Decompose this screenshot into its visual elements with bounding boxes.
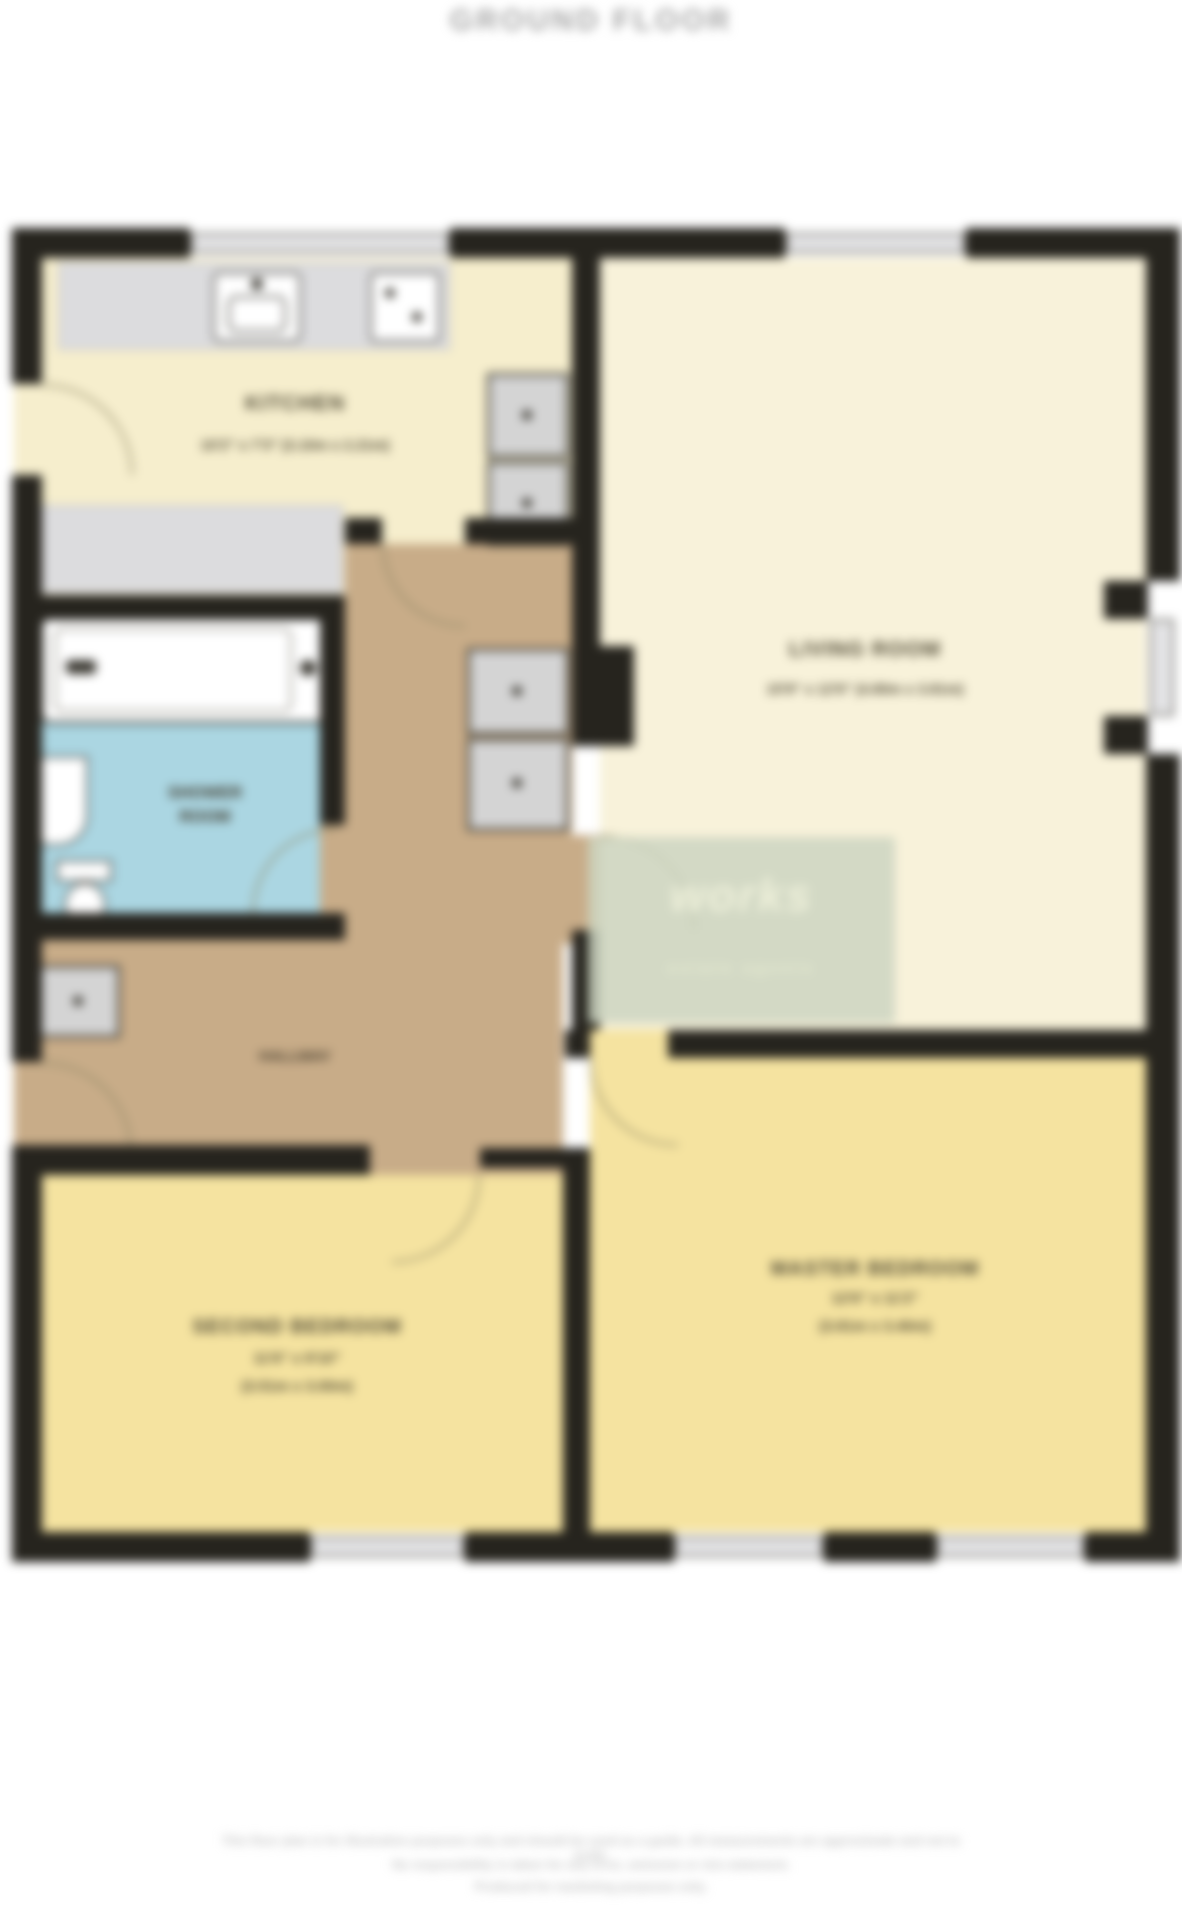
cupboard-knob-icon (512, 778, 522, 788)
hob-icon (370, 272, 440, 342)
watermark-box (588, 837, 895, 1023)
shower-room-label: ROOM (125, 808, 285, 827)
wall (465, 1532, 674, 1562)
toilet-cistern-icon (56, 860, 112, 882)
wall (345, 518, 382, 544)
wall (12, 1145, 370, 1175)
wall (1085, 1532, 1180, 1562)
wall (1146, 754, 1180, 1532)
wall (320, 595, 345, 825)
wall-stub (1104, 581, 1148, 619)
cupboard-knob-icon (512, 686, 522, 696)
window (1150, 619, 1174, 716)
wall (450, 228, 785, 258)
window (190, 233, 450, 253)
living-room-dims: 15'9" x 12'6" (4.80m x 3.81m) (685, 682, 1045, 698)
master-bedroom-label: MASTER BEDROOM (695, 1258, 1055, 1281)
wall-junction (572, 646, 634, 746)
wall (563, 1148, 590, 1532)
wall (12, 1152, 42, 1532)
living-room-label: LIVING ROOM (685, 638, 1045, 662)
wall-stub (1104, 716, 1148, 754)
watermark-logo-text: works (588, 868, 895, 922)
wall (668, 1030, 1146, 1058)
wall (12, 1532, 310, 1562)
kitchen-floor (14, 384, 42, 475)
window (310, 1537, 465, 1557)
window (674, 1537, 824, 1557)
kitchen-worktop (42, 505, 343, 593)
hob-burner-icon (412, 312, 422, 322)
unit-knob-icon (522, 498, 532, 508)
wall (572, 258, 600, 646)
hallway-floor (14, 1062, 42, 1152)
window (785, 233, 966, 253)
window (936, 1537, 1085, 1557)
second-bedroom-label: SECOND BEDROOM (117, 1316, 477, 1339)
shower-room-label: SHOWER (125, 784, 285, 803)
wall (565, 1030, 590, 1058)
bath-tap-icon (66, 660, 96, 674)
wall (1146, 228, 1180, 581)
sink-bowl-icon (228, 296, 286, 332)
kitchen-label: KITCHEN (115, 392, 475, 416)
kitchen-dims: 10'2" x 7'3" (3.10m x 2.21m) (115, 438, 475, 454)
sink-tap-icon (251, 278, 263, 290)
unit-knob-icon (522, 410, 532, 420)
cupboard-knob-icon (73, 996, 83, 1006)
second-bedroom-dims-imperial: 11'6" x 9'10" (117, 1350, 477, 1367)
hob-burner-icon (385, 288, 395, 298)
wall (12, 913, 345, 940)
second-bedroom-dims-metric: (3.51m x 3.00m) (117, 1378, 477, 1395)
master-bedroom-dims-metric: (3.81m x 3.40m) (695, 1318, 1055, 1335)
floorplan-page: GROUND FLOOR (0, 0, 1182, 1931)
disclaimer-line: Produced for marketing purposes only. (211, 1880, 971, 1894)
wall (12, 595, 345, 620)
disclaimer-line: No responsibility is taken for any error… (211, 1858, 971, 1872)
watermark-subtext: estate agents (588, 960, 895, 977)
hallway-label: HALLWAY (215, 1048, 375, 1065)
wall (824, 1532, 936, 1562)
master-bedroom-dims-imperial: 12'6" x 11'2" (695, 1290, 1055, 1307)
page-title: GROUND FLOOR (0, 4, 1182, 38)
master-bedroom-floor (590, 1030, 668, 1058)
wall (12, 228, 42, 384)
bath-plug-icon (300, 660, 316, 676)
wall (12, 475, 42, 1062)
wall (465, 518, 572, 544)
